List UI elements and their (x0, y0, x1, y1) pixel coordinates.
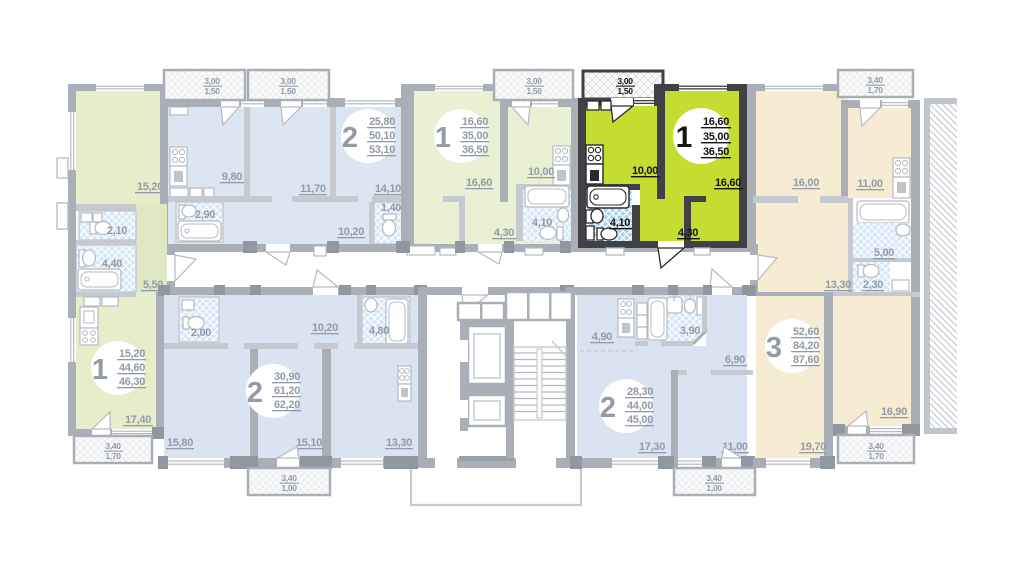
svg-text:3,00: 3,00 (617, 76, 633, 86)
svg-text:36,50: 36,50 (703, 146, 729, 158)
svg-text:11,00: 11,00 (857, 178, 883, 190)
svg-text:4,10: 4,10 (610, 217, 630, 229)
svg-text:13,30: 13,30 (825, 279, 851, 291)
svg-text:19,70: 19,70 (800, 441, 826, 453)
svg-text:16,00: 16,00 (793, 177, 819, 189)
svg-text:30,90: 30,90 (274, 371, 300, 383)
svg-text:10,20: 10,20 (312, 322, 338, 334)
svg-text:3,90: 3,90 (680, 325, 700, 337)
svg-text:1,00: 1,00 (281, 483, 297, 493)
svg-text:1,00: 1,00 (706, 483, 722, 493)
svg-text:61,20: 61,20 (274, 385, 300, 397)
svg-text:35,00: 35,00 (703, 131, 729, 143)
svg-text:3,40: 3,40 (281, 473, 297, 483)
svg-text:2,10: 2,10 (107, 225, 127, 237)
svg-text:52,60: 52,60 (793, 326, 819, 338)
svg-text:16,60: 16,60 (715, 177, 741, 189)
svg-text:3,40: 3,40 (868, 441, 884, 451)
svg-text:14,10: 14,10 (375, 183, 401, 195)
svg-text:3: 3 (766, 332, 782, 364)
svg-text:25,80: 25,80 (369, 116, 395, 128)
svg-text:4,10: 4,10 (532, 217, 552, 229)
svg-text:2,00: 2,00 (191, 327, 211, 339)
svg-text:1,40: 1,40 (381, 202, 401, 214)
svg-text:45,00: 45,00 (627, 414, 653, 426)
svg-text:1,70: 1,70 (105, 451, 121, 461)
svg-text:2,90: 2,90 (195, 209, 215, 221)
svg-text:16,60: 16,60 (703, 116, 729, 128)
svg-text:2: 2 (342, 122, 358, 154)
svg-text:1,70: 1,70 (867, 85, 883, 95)
svg-text:10,20: 10,20 (338, 226, 364, 238)
svg-text:15,20: 15,20 (119, 348, 145, 360)
svg-text:16,60: 16,60 (466, 177, 492, 189)
svg-text:1,50: 1,50 (526, 86, 542, 96)
svg-text:4,40: 4,40 (102, 258, 122, 270)
svg-text:84,20: 84,20 (793, 340, 819, 352)
svg-text:13,30: 13,30 (386, 437, 412, 449)
svg-text:15,80: 15,80 (167, 437, 193, 449)
svg-text:1,50: 1,50 (617, 86, 633, 96)
svg-text:16,90: 16,90 (881, 406, 907, 418)
svg-text:3,00: 3,00 (280, 76, 296, 86)
svg-text:11,70: 11,70 (300, 183, 326, 195)
svg-text:17,40: 17,40 (125, 414, 151, 426)
svg-text:6,90: 6,90 (725, 354, 745, 366)
svg-text:4,30: 4,30 (494, 227, 514, 239)
svg-text:44,00: 44,00 (627, 400, 653, 412)
svg-text:44,60: 44,60 (119, 362, 145, 374)
svg-text:3,40: 3,40 (105, 441, 121, 451)
svg-text:1: 1 (435, 122, 451, 154)
svg-text:36,50: 36,50 (462, 144, 488, 156)
svg-text:1,70: 1,70 (868, 451, 884, 461)
svg-text:35,00: 35,00 (462, 130, 488, 142)
svg-text:4,90: 4,90 (592, 331, 612, 343)
svg-text:50,10: 50,10 (369, 130, 395, 142)
svg-text:3,00: 3,00 (204, 76, 220, 86)
svg-text:1,50: 1,50 (204, 86, 220, 96)
svg-text:10,00: 10,00 (528, 166, 554, 178)
svg-text:17,30: 17,30 (639, 441, 665, 453)
svg-text:10,00: 10,00 (632, 165, 658, 177)
svg-text:4,30: 4,30 (678, 227, 698, 239)
svg-text:2: 2 (247, 377, 263, 409)
svg-text:5,00: 5,00 (874, 247, 894, 259)
svg-text:15,20: 15,20 (137, 181, 163, 193)
svg-text:3,00: 3,00 (526, 76, 542, 86)
svg-text:2,30: 2,30 (863, 279, 883, 291)
svg-text:87,60: 87,60 (793, 354, 819, 366)
svg-text:53,10: 53,10 (369, 144, 395, 156)
svg-text:9,80: 9,80 (222, 171, 242, 183)
svg-text:3,40: 3,40 (867, 75, 883, 85)
svg-text:28,30: 28,30 (627, 386, 653, 398)
svg-text:2: 2 (600, 392, 616, 424)
svg-text:46,30: 46,30 (119, 376, 145, 388)
svg-text:15,10: 15,10 (296, 437, 322, 449)
svg-text:1,50: 1,50 (280, 86, 296, 96)
svg-text:62,20: 62,20 (274, 399, 300, 411)
svg-text:16,60: 16,60 (462, 116, 488, 128)
svg-text:1: 1 (92, 354, 108, 386)
svg-text:1: 1 (676, 121, 693, 154)
svg-text:3,40: 3,40 (706, 473, 722, 483)
svg-text:4,80: 4,80 (369, 325, 389, 337)
